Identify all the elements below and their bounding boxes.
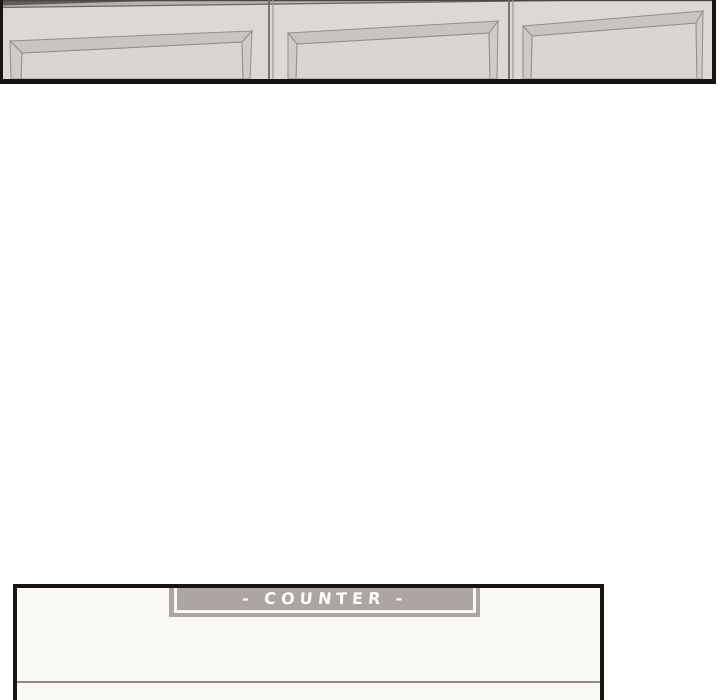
counter-sign-label: - COUNTER - [242, 589, 409, 610]
top-comic-panel [0, 0, 716, 84]
counter-sign-frame: - COUNTER - [174, 588, 476, 613]
cabinet-doors-illustration [0, 0, 716, 84]
panel-gutter [0, 84, 720, 584]
comic-page: - COUNTER - [0, 0, 720, 700]
bottom-comic-panel: - COUNTER - [13, 584, 604, 700]
countertop-edge-line [17, 681, 600, 683]
counter-sign: - COUNTER - [169, 588, 480, 617]
panel-top-line [0, 0, 716, 1]
